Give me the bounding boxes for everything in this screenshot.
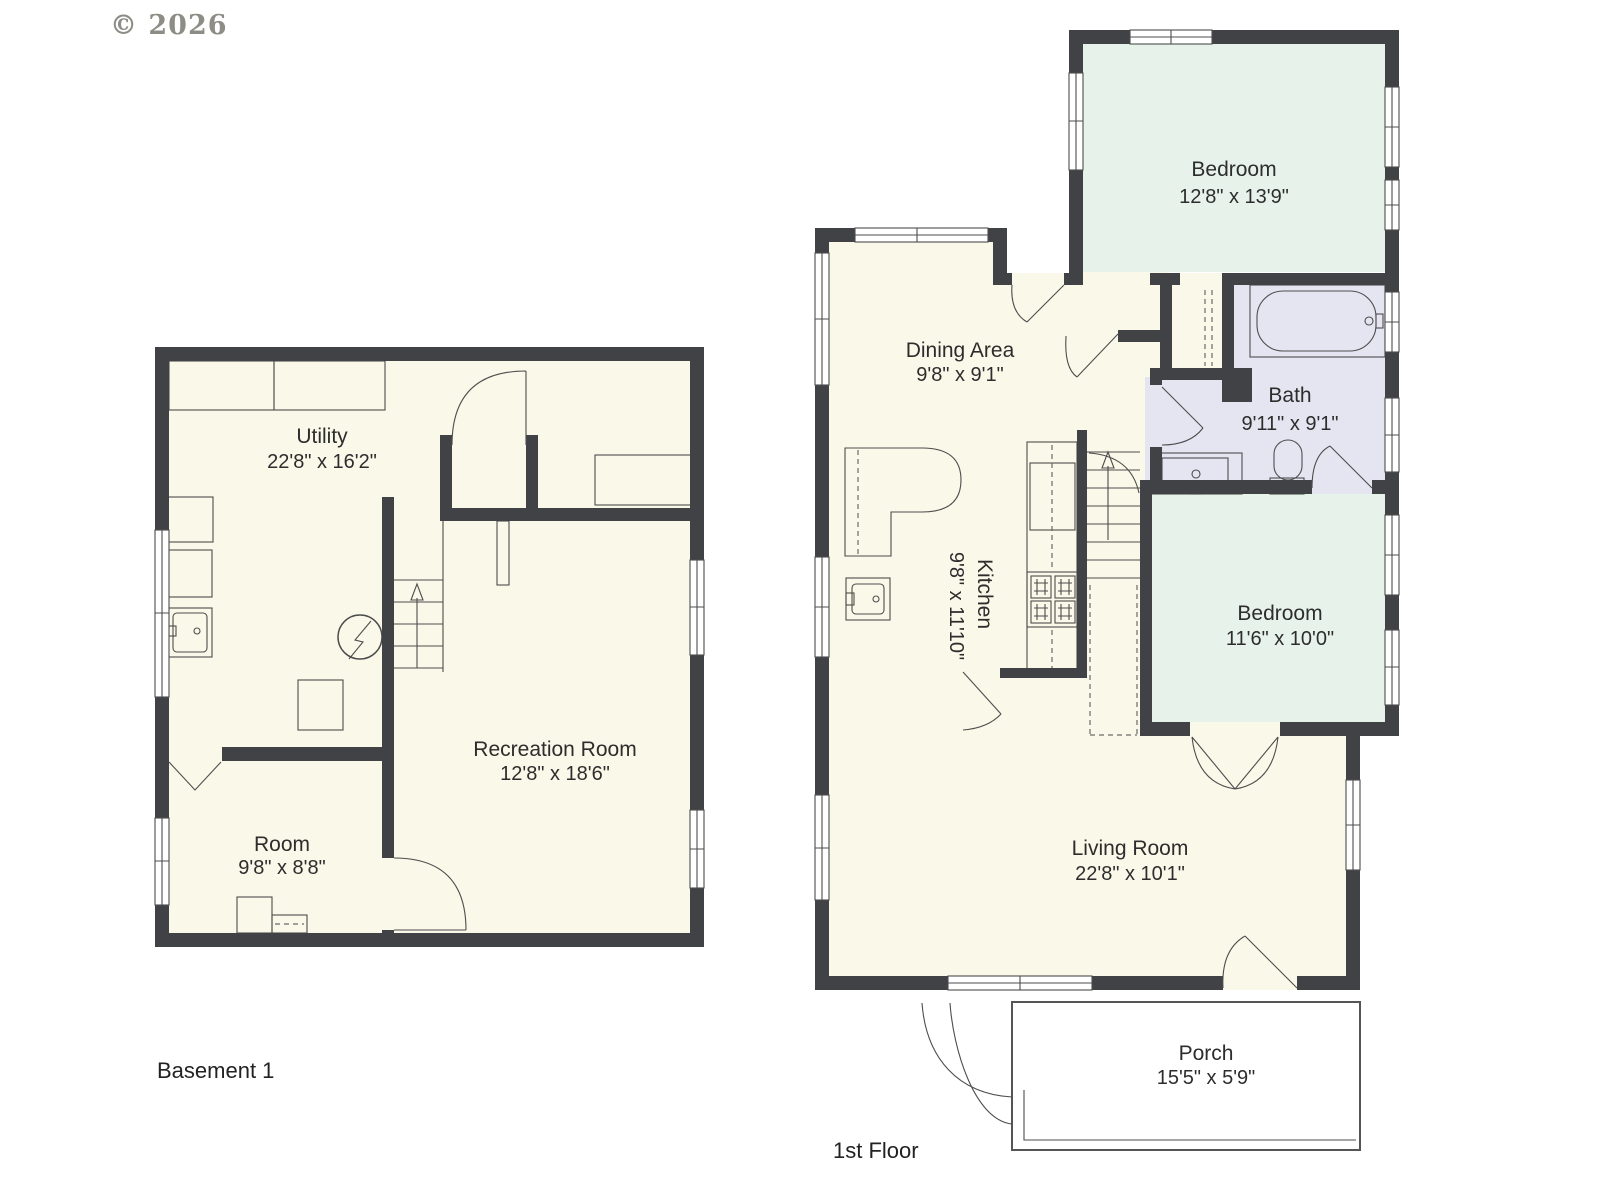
floorplan-drawing: Utility 22'8" x 16'2" Room 9'8" x 8'8" R…	[0, 0, 1600, 1200]
room-dims: 12'8" x 13'9"	[1179, 186, 1289, 208]
walkway-curve	[922, 1003, 1012, 1097]
wall-hall-stub	[1118, 330, 1162, 342]
room-dims-kitchen: 9'8" x 11'10"	[945, 552, 967, 660]
wall-recreation-top	[440, 508, 704, 521]
closet-wall-left	[440, 435, 452, 521]
room-dims: 11'6" x 10'0"	[1226, 628, 1334, 650]
floor-title-first: 1st Floor	[833, 1138, 919, 1163]
door-gap	[382, 858, 394, 930]
floorplan-page: Utility 22'8" x 16'2" Room 9'8" x 8'8" R…	[0, 0, 1600, 1200]
room-label-kitchen: Kitchen	[973, 559, 996, 629]
closet-wall-right	[526, 435, 538, 521]
room-label: Room	[254, 833, 310, 856]
room-label: Bedroom	[1191, 158, 1276, 181]
room-label: Living Room	[1072, 837, 1189, 860]
room-dims: 9'11" x 9'1"	[1241, 413, 1338, 435]
room-label: Porch	[1179, 1042, 1234, 1065]
wall-kitchen-right	[1077, 430, 1087, 678]
porch-outline	[922, 1002, 1360, 1150]
room-label: Bedroom	[1237, 602, 1322, 625]
first-floor-plan: Bedroom 12'8" x 13'9" Dining Area 9'8" x…	[815, 30, 1399, 1163]
bedroom1-floor	[1076, 38, 1392, 272]
room-label: Bath	[1268, 384, 1311, 407]
wall-closet-right	[1222, 285, 1234, 380]
copyright-watermark: © 2026	[110, 10, 228, 41]
room-label: Dining Area	[906, 339, 1015, 362]
basement-floor	[162, 354, 697, 940]
wall-utility-room	[222, 747, 394, 761]
basement-plan: Utility 22'8" x 16'2" Room 9'8" x 8'8" R…	[155, 347, 704, 1083]
wall-kitchen-bottom	[1000, 668, 1087, 678]
room-dims: 22'8" x 10'1"	[1075, 863, 1185, 885]
room-dims: 9'8" x 8'8"	[238, 857, 325, 879]
room-dims: 22'8" x 16'2"	[267, 451, 377, 473]
room-dims: 15'5" x 5'9"	[1157, 1067, 1256, 1089]
walkway-curve	[950, 1003, 1012, 1124]
room-dims: 9'8" x 9'1"	[916, 364, 1003, 386]
floor-title-basement: Basement 1	[157, 1058, 274, 1083]
room-label: Utility	[296, 425, 348, 448]
closet-floor	[1166, 279, 1228, 374]
wall-bedroom2-left	[1140, 480, 1152, 722]
room-label: Recreation Room	[473, 738, 636, 761]
room-dims: 12'8" x 18'6"	[500, 763, 610, 785]
